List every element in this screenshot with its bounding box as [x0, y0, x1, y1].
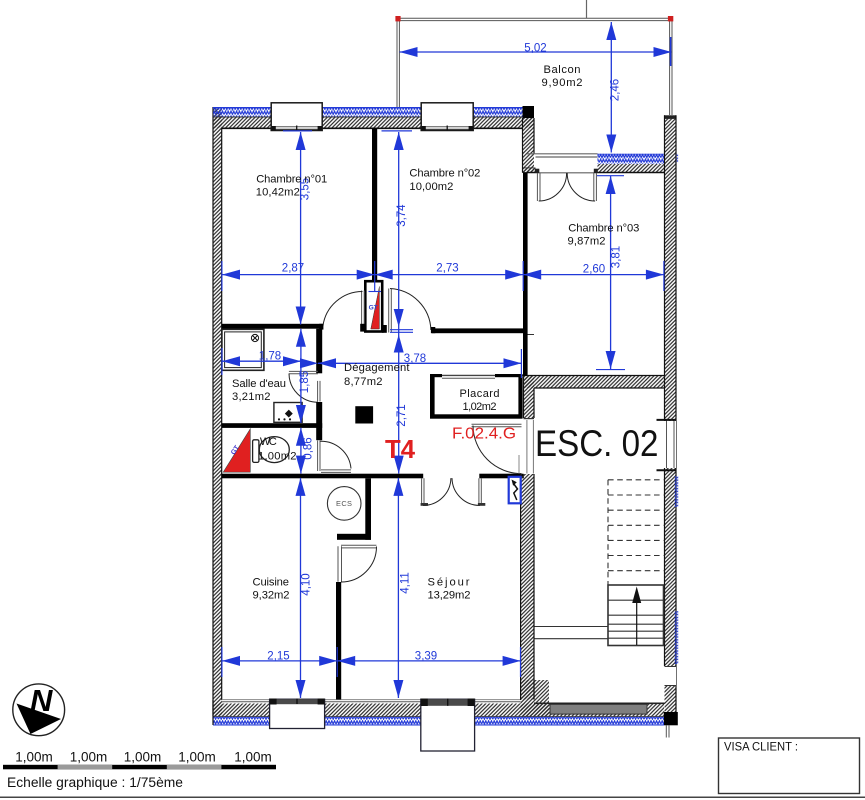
svg-text:2,60: 2,60	[583, 264, 605, 276]
svg-text:1,00m: 1,00m	[124, 750, 162, 765]
svg-text:Echelle graphique : 1/75ème: Echelle graphique : 1/75ème	[7, 775, 183, 790]
svg-text:2,46: 2,46	[610, 79, 622, 101]
svg-text:2,15: 2,15	[267, 650, 289, 662]
svg-text:13,29m2: 13,29m2	[428, 590, 471, 602]
svg-text:9,32m2: 9,32m2	[253, 590, 290, 602]
svg-text:5,02: 5,02	[524, 42, 546, 54]
svg-text:4,10: 4,10	[301, 573, 313, 595]
svg-text:3,39: 3,39	[415, 650, 437, 662]
svg-text:3,74: 3,74	[396, 204, 408, 227]
svg-text:10,42m2: 10,42m2	[256, 186, 300, 198]
svg-text:1,00m2: 1,00m2	[258, 450, 297, 462]
svg-text:0,86: 0,86	[302, 437, 314, 459]
svg-text:F.02.4.G: F.02.4.G	[452, 426, 516, 443]
svg-text:10,00m2: 10,00m2	[409, 181, 453, 193]
svg-text:Chambre n°02: Chambre n°02	[409, 168, 480, 180]
svg-text:Placard: Placard	[460, 388, 500, 400]
svg-text:GT: GT	[369, 305, 378, 312]
svg-text:9,87m2: 9,87m2	[568, 235, 606, 247]
svg-text:2,73: 2,73	[436, 263, 458, 275]
svg-text:2,71: 2,71	[396, 404, 408, 426]
svg-text:3,21m2: 3,21m2	[232, 391, 271, 403]
svg-text:ESC. 02: ESC. 02	[535, 422, 659, 464]
svg-text:Chambre n°03: Chambre n°03	[568, 222, 639, 234]
svg-text:1,00m: 1,00m	[70, 750, 108, 765]
svg-text:1,00m: 1,00m	[178, 750, 216, 765]
svg-text:T4: T4	[385, 434, 416, 464]
svg-text:8,77m2: 8,77m2	[344, 376, 383, 388]
svg-text:1,02m2: 1,02m2	[463, 401, 497, 413]
svg-text:VISA CLIENT :: VISA CLIENT :	[724, 742, 798, 754]
svg-text:1,85: 1,85	[299, 371, 311, 393]
svg-text:Dégagement: Dégagement	[344, 362, 410, 374]
svg-text:9,90m2: 9,90m2	[542, 77, 583, 89]
svg-text:WC: WC	[260, 436, 277, 448]
svg-text:1,78: 1,78	[259, 351, 281, 363]
svg-text:Salle d'eau: Salle d'eau	[232, 378, 286, 390]
svg-text:1,00m: 1,00m	[234, 750, 272, 765]
svg-text:Cuisine: Cuisine	[253, 576, 290, 588]
svg-text:Chambre n°01: Chambre n°01	[256, 173, 327, 185]
svg-text:ECS: ECS	[336, 499, 352, 508]
svg-text:1,00m: 1,00m	[15, 750, 53, 765]
svg-text:3,81: 3,81	[611, 246, 623, 268]
svg-text:Balcon: Balcon	[544, 64, 581, 76]
svg-text:N: N	[30, 683, 53, 718]
svg-text:Séjour: Séjour	[428, 576, 470, 588]
svg-text:4,11: 4,11	[400, 572, 412, 594]
